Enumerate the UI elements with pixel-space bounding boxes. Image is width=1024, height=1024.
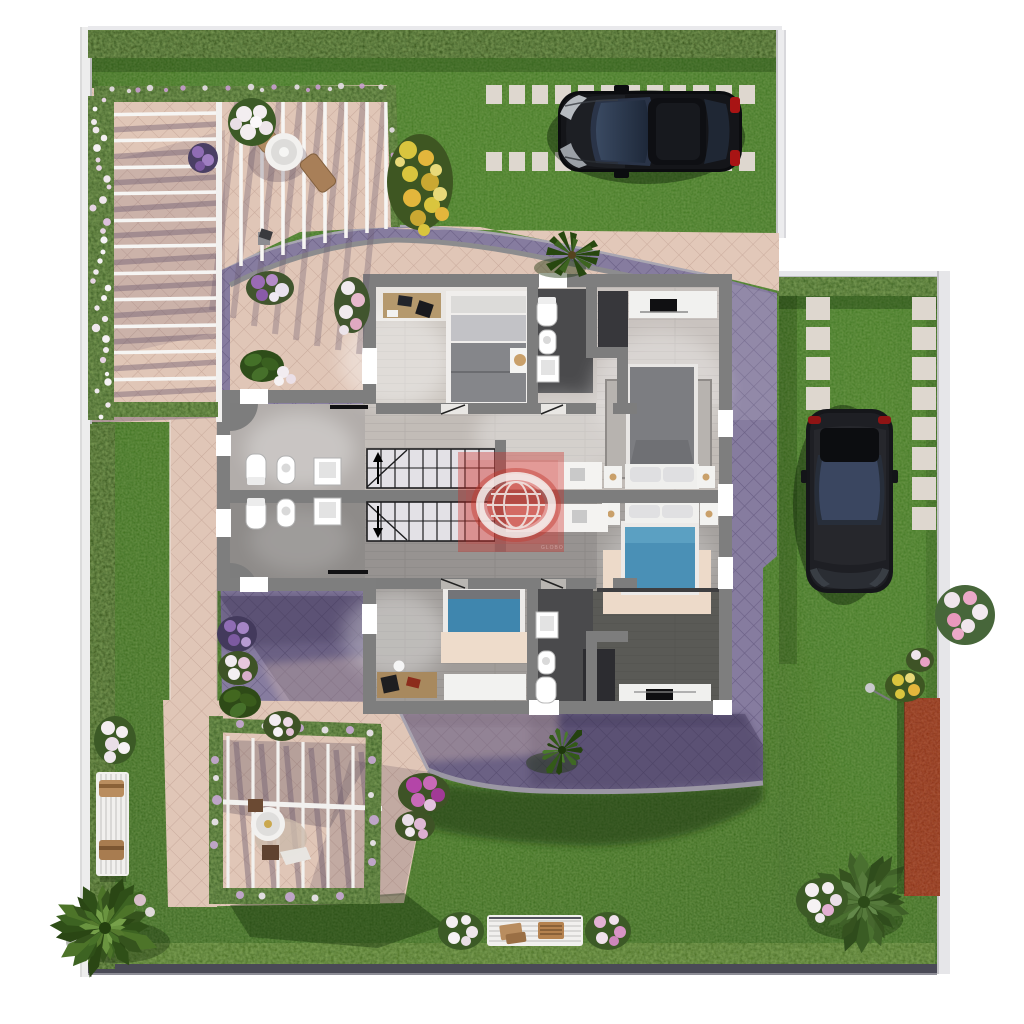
svg-text:GLOBO: GLOBO [541,545,564,551]
